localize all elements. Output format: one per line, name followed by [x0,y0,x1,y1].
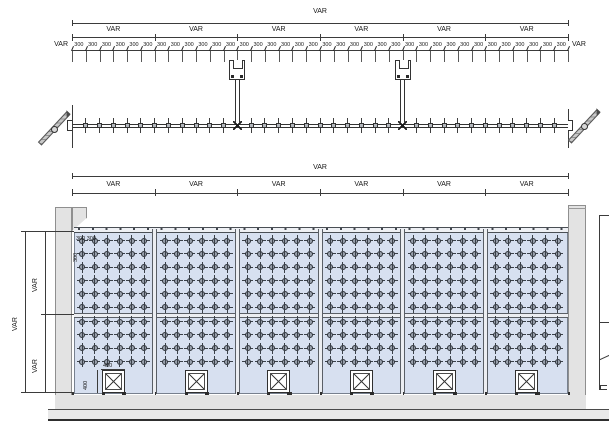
plan-overall-dim-tick [72,20,73,26]
spider-fitting [77,316,88,327]
plan-grid-tick [72,50,73,62]
plan-glass-clamp [441,118,448,133]
spider-fitting [470,302,481,313]
spider-fitting [432,302,443,313]
plan-grid-tick [320,50,321,62]
spider-fitting [222,235,233,246]
spider-fitting [222,316,233,327]
spider-fitting [445,329,456,340]
plan-grid-tick [224,50,225,62]
spider-fitting [374,288,385,299]
spider-fitting [527,329,538,340]
spider-fitting [387,329,398,340]
spider-fitting [470,275,481,286]
spider-fitting [325,356,336,367]
plan-support-bracket [395,60,411,80]
spider-fitting [445,288,456,299]
plan-left-end-clamp [67,120,72,131]
spider-fitting [139,302,150,313]
plan-unit-dim-label: 300 [168,42,182,48]
spider-fitting [362,262,373,273]
spider-fitting [337,288,348,299]
spider-fitting [255,248,266,259]
spider-fitting [408,343,419,354]
spider-fitting [350,356,361,367]
spider-fitting [222,329,233,340]
spider-fitting [114,356,125,367]
spider-fitting [503,343,514,354]
door-panel [267,370,290,393]
spider-fitting [172,356,183,367]
spider-fitting [325,288,336,299]
spider-fitting [445,235,456,246]
spider-fitting [470,356,481,367]
plan-grid-tick [513,50,514,62]
spider-fitting [503,275,514,286]
spider-fitting [242,302,253,313]
plan-unit-dim-label: 300 [527,42,541,48]
spider-fitting [362,248,373,259]
plan-glass-clamp [468,118,475,133]
spider-fitting [89,262,100,273]
spider-fitting [445,356,456,367]
spider-fitting [160,275,171,286]
spider-fitting [515,329,526,340]
spider-fitting [114,343,125,354]
spider-fitting [490,302,501,313]
spider-fitting [126,288,137,299]
plan-bay-dim-tick [237,34,238,41]
plan-unit-dim-label: 300 [279,42,293,48]
spider-fitting [172,235,183,246]
spider-fitting [139,316,150,327]
spider-fitting [172,275,183,286]
spider-fitting [350,235,361,246]
spider-fitting [89,302,100,313]
spider-fitting [337,275,348,286]
spider-fitting [374,262,385,273]
spider-fitting [337,248,348,259]
spider-fitting [126,248,137,259]
spider-fitting [304,262,315,273]
spider-fitting [304,248,315,259]
spider-fitting [408,235,419,246]
spider-fitting [515,316,526,327]
spider-fitting [255,316,266,327]
elev-bay-dim-label: VAR [155,181,238,189]
spider-fitting [172,316,183,327]
spider-fitting [197,248,208,259]
spider-fitting [279,316,290,327]
spider-fitting [197,262,208,273]
spider-fitting [197,343,208,354]
spider-fitting [337,302,348,313]
spider-fitting [527,343,538,354]
plan-grid-tick [279,50,280,62]
plan-grid-tick [155,50,156,62]
spider-fitting [374,329,385,340]
spider-fitting [350,248,361,259]
spider-fitting [337,262,348,273]
spider-fitting [362,275,373,286]
spider-fitting [374,356,385,367]
spider-fitting [304,235,315,246]
spider-fitting [197,329,208,340]
spider-fitting [374,275,385,286]
spider-fitting [184,343,195,354]
plan-grid-tick [127,50,128,62]
spider-fitting [184,288,195,299]
plan-unit-dim-label: 300 [375,42,389,48]
spider-fitting [432,356,443,367]
plan-glass-clamp [344,118,351,133]
spider-fitting [387,235,398,246]
elev-bay-dim-label: VAR [320,181,403,189]
spider-fitting [102,302,113,313]
spider-fitting [457,288,468,299]
plan-right-end-clamp [568,120,573,131]
elev-bay-dim-tick [155,189,156,196]
spider-fitting [242,356,253,367]
plan-glass-clamp [206,118,213,133]
spider-fitting [337,343,348,354]
spider-fitting [77,329,88,340]
plan-glass-clamp [151,118,158,133]
elev-v-ext-bottom [21,392,74,393]
spider-fitting [408,356,419,367]
plan-unit-dim-label: 300 [361,42,375,48]
spider-fitting [387,343,398,354]
plan-unit-dim-label: 300 [86,42,100,48]
spider-fitting [503,248,514,259]
plan-glass-clamp [289,118,296,133]
plan-unit-dim-label: 300 [182,42,196,48]
elev-v-ext-mid [41,314,74,315]
plan-glass-clamp [137,118,144,133]
spider-h-spacing-label: 300 300 [76,236,96,242]
elev-v-overall-dim-line [25,231,26,392]
spider-fitting [139,235,150,246]
spider-fitting [89,356,100,367]
spider-fitting [470,329,481,340]
spider-fitting [102,343,113,354]
plan-support-stem [400,80,405,123]
plan-unit-dim-label: 300 [348,42,362,48]
spider-fitting [292,262,303,273]
elev-bay-dim-row: VARVARVARVARVARVAR [72,181,568,189]
spider-fitting [114,235,125,246]
adjacent-structure-top-line [599,215,609,216]
spider-fitting [387,288,398,299]
spider-fitting [408,248,419,259]
spider-fitting [222,275,233,286]
spider-fitting [184,356,195,367]
plan-glass-clamp [165,118,172,133]
spider-fitting [503,262,514,273]
spider-fitting [114,329,125,340]
plan-grid-tick [86,50,87,62]
plan-unit-dim-label: 300 [320,42,334,48]
spider-fitting [267,343,278,354]
spider-fitting [126,235,137,246]
spider-fitting [420,329,431,340]
plan-glass-clamp [385,118,392,133]
door-panel [185,370,208,393]
plan-unit-dim-label: 300 [430,42,444,48]
spider-fitting [267,275,278,286]
spider-fitting [172,248,183,259]
spider-fitting [160,288,171,299]
spider-fitting [172,262,183,273]
wall-base-band [55,395,586,410]
plan-glass-clamp [317,118,324,133]
spider-fitting [374,316,385,327]
plan-glass-clamp [482,118,489,133]
spider-fitting [490,356,501,367]
plan-unit-dim-label: 300 [127,42,141,48]
spider-fitting [242,235,253,246]
right-wall-cap-line [568,208,586,209]
spider-fitting [540,248,551,259]
spider-fitting [89,329,100,340]
spider-fitting [77,275,88,286]
spider-fitting [304,302,315,313]
elev-v-segment-dim-line [45,231,46,392]
spider-fitting [490,235,501,246]
spider-fitting [552,316,563,327]
spider-fitting [457,356,468,367]
spider-fitting [374,343,385,354]
spider-fitting [255,329,266,340]
spider-fitting [267,248,278,259]
door-width-dim-line [101,369,125,370]
spider-fitting [242,343,253,354]
spider-fitting [408,316,419,327]
spider-fitting [292,288,303,299]
spider-fitting [126,316,137,327]
spider-fitting [197,235,208,246]
spider-fitting [527,262,538,273]
spider-fitting [540,343,551,354]
spider-fitting [457,248,468,259]
spider-fitting [209,275,220,286]
mullion [235,229,240,394]
plan-grid-tick [554,50,555,62]
elev-bay-dim-tick [568,189,569,196]
plan-unit-dim-label: 300 [265,42,279,48]
spider-fitting [255,343,266,354]
spider-fitting [387,275,398,286]
spider-fitting [503,329,514,340]
plan-glass-clamp [179,118,186,133]
elev-bay-dim-tick [320,189,321,196]
spider-fitting [267,235,278,246]
spider-fitting [362,235,373,246]
elev-bay-dim-label: VAR [403,181,486,189]
spider-fitting [457,235,468,246]
spider-fitting [527,288,538,299]
plan-glass-clamp [413,118,420,133]
spider-fitting [420,356,431,367]
spider-fitting [552,329,563,340]
spider-fitting [362,356,373,367]
spider-fitting [209,316,220,327]
mullion [152,229,157,394]
spider-fitting [457,275,468,286]
spider-fitting [77,288,88,299]
spider-fitting [527,356,538,367]
spider-fitting [362,288,373,299]
elev-v-upper-label: VAR [32,252,40,292]
spider-fitting [89,248,100,259]
elev-bay-dim-tick [237,189,238,196]
spider-fitting [470,343,481,354]
spider-fitting [362,316,373,327]
spider-fitting [292,235,303,246]
plan-grid-tick [389,50,390,62]
spider-fitting [160,316,171,327]
spider-fitting [515,248,526,259]
elev-bay-dim-label: VAR [485,181,568,189]
plan-grid-tick [196,50,197,62]
spider-fitting [374,248,385,259]
spider-fitting [197,316,208,327]
plan-unit-dim-label: 300 [389,42,403,48]
spider-fitting [126,356,137,367]
spider-fitting [408,302,419,313]
spider-fitting [552,302,563,313]
plan-grid-tick [168,50,169,62]
adjacent-structure-mid-line [599,322,609,323]
spider-fitting [292,275,303,286]
plan-grid-tick [348,50,349,62]
spider-fitting [242,288,253,299]
spider-fitting [362,302,373,313]
plan-grid-tick [375,50,376,62]
plan-grid-tick [458,50,459,62]
plan-unit-dim-label: 300 [141,42,155,48]
door-panel [102,370,125,393]
plan-bay-dim-tick [568,34,569,41]
spider-fitting [408,275,419,286]
spider-fitting [184,275,195,286]
spider-fitting [350,316,361,327]
spider-fitting [89,343,100,354]
spider-fitting [350,343,361,354]
door-panel [515,370,538,393]
mullion [400,229,405,394]
spider-fitting [279,356,290,367]
plan-grid-tick [540,50,541,62]
spider-fitting [325,343,336,354]
spider-v-spacing-label: 300 [73,244,79,262]
spider-fitting [540,329,551,340]
floor-plinth [48,409,609,421]
spider-fitting [503,235,514,246]
plan-bay-dim-label: VAR [237,26,320,34]
plan-support-bracket [229,60,245,80]
plan-grid-tick [568,50,569,62]
spider-fitting [490,248,501,259]
spider-fitting [432,316,443,327]
spider-fitting [304,288,315,299]
spider-fitting [77,302,88,313]
spider-fitting [209,262,220,273]
spider-fitting [527,275,538,286]
spider-fitting [325,329,336,340]
spider-fitting [139,288,150,299]
plan-left-end-dim-label: VAR [40,41,68,49]
spider-fitting [325,316,336,327]
spider-fitting [279,262,290,273]
spider-fitting [279,302,290,313]
spider-fitting [292,302,303,313]
spider-fitting [242,275,253,286]
spider-fitting [515,235,526,246]
plan-overall-dim-tick [568,20,569,26]
spider-fitting [540,316,551,327]
spider-fitting [515,262,526,273]
plan-grid-tick [444,50,445,62]
spider-fitting [527,302,538,313]
plan-glass-clamp [193,118,200,133]
plan-left-strut-pin [51,126,58,133]
plan-grid-tick [361,50,362,62]
spider-fitting [114,275,125,286]
spider-fitting [197,302,208,313]
spider-fitting [267,329,278,340]
spider-fitting [242,262,253,273]
plan-support-stem [235,80,240,123]
adjacent-structure-diagonal [599,355,609,361]
adjacent-structure-wall-line [599,215,600,390]
plan-glass-clamp [358,118,365,133]
spider-fitting [292,248,303,259]
spider-fitting [304,329,315,340]
spider-fitting [552,248,563,259]
spider-fitting [209,356,220,367]
spider-fitting [267,316,278,327]
spider-fitting [242,248,253,259]
spider-fitting [255,356,266,367]
spider-fitting [77,343,88,354]
spider-fitting [139,262,150,273]
spider-fitting [102,275,113,286]
spider-fitting [540,262,551,273]
spider-fitting [126,343,137,354]
spider-fitting [279,248,290,259]
plan-overall-dim-line [72,23,568,24]
spider-fitting [420,275,431,286]
plan-unit-dim-label: 300 [541,42,555,48]
spider-fitting [279,329,290,340]
spider-fitting [139,329,150,340]
spider-fitting [102,248,113,259]
spider-fitting [267,356,278,367]
spider-fitting [540,275,551,286]
spider-fitting [267,302,278,313]
plan-glass-clamp [454,118,461,133]
plan-glass-clamp [427,118,434,133]
plan-unit-dim-label: 300 [334,42,348,48]
plan-unit-dim-label: 300 [210,42,224,48]
spider-fitting [222,356,233,367]
mullion [483,229,488,394]
plan-glass-clamp [248,118,255,133]
spider-fitting [209,288,220,299]
spider-fitting [325,248,336,259]
spider-fitting [420,248,431,259]
